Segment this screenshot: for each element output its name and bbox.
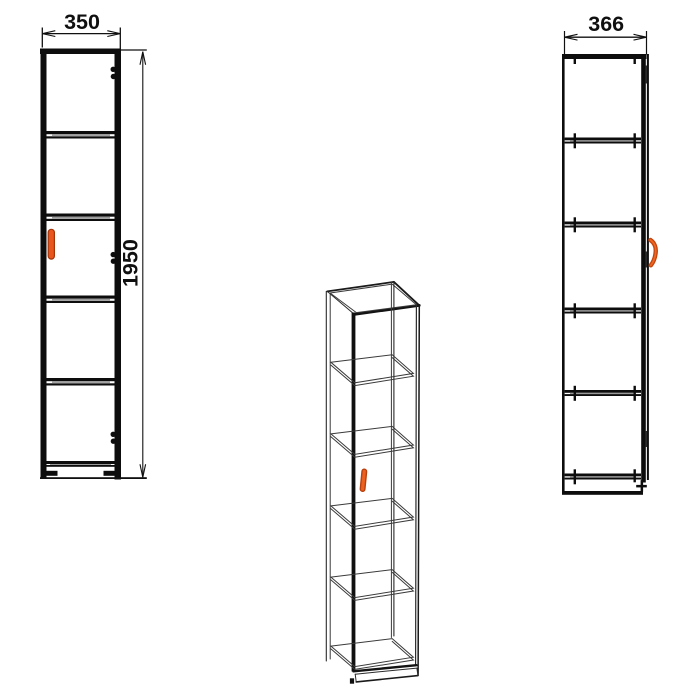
svg-text:1950: 1950 bbox=[119, 239, 143, 287]
svg-text:366: 366 bbox=[588, 12, 624, 36]
svg-text:350: 350 bbox=[64, 10, 100, 34]
